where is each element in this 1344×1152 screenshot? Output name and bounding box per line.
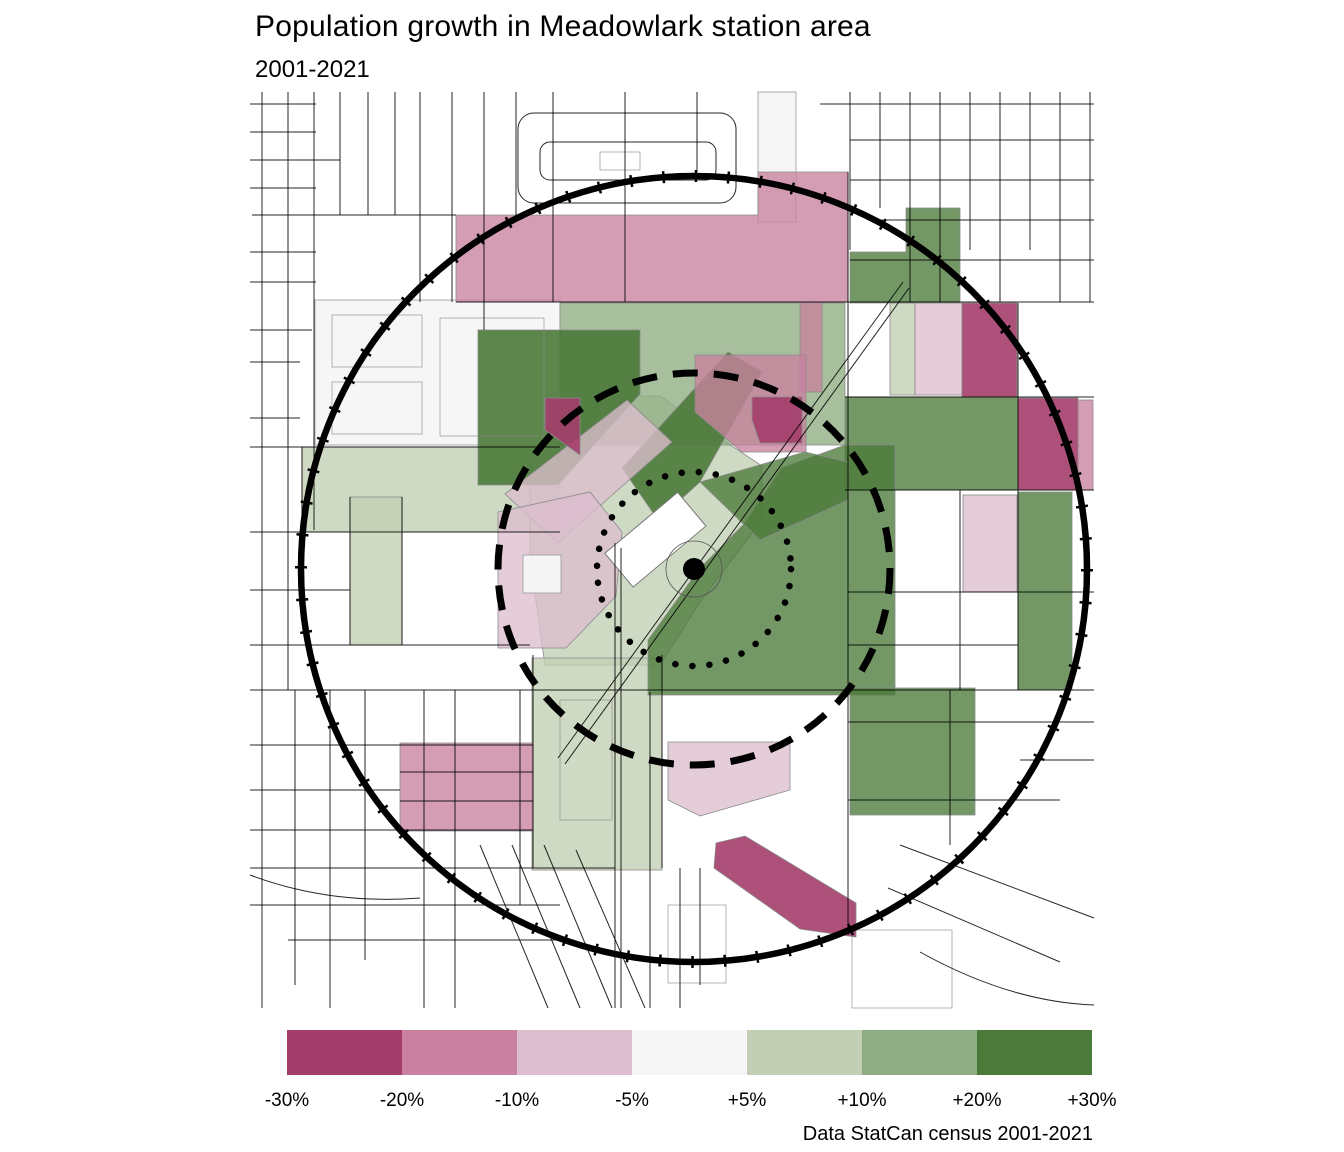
legend-swatch-7 [977, 1030, 1092, 1075]
zone-midpink-striped-block [400, 743, 533, 831]
zone-layer [302, 92, 1093, 937]
legend-label--5: -5% [615, 1090, 649, 1112]
legend-label--10: -10% [495, 1090, 539, 1112]
zone-darkgreen-east-strip [1018, 492, 1072, 690]
zone-darkgreen-south-block [850, 688, 975, 815]
zone-lightpink-east-strip [915, 303, 962, 395]
zone-lightpink-east-small [963, 495, 1017, 592]
legend-swatch-5 [747, 1030, 862, 1075]
legend-swatch-3 [517, 1030, 632, 1075]
legend-label-+10: +10% [837, 1090, 886, 1112]
legend-swatch-6 [862, 1030, 977, 1075]
legend-label--30: -30% [265, 1090, 309, 1112]
zone-lightgreen-east [890, 303, 915, 395]
zone-lightgreen-strip [350, 497, 402, 645]
legend-swatch-1 [287, 1030, 402, 1075]
zone-midpink-east-sliver [1078, 400, 1093, 490]
legend-label--20: -20% [380, 1090, 424, 1112]
zone-magenta-east-1 [962, 303, 1017, 397]
zone-courtyard [523, 555, 561, 593]
legend-bar [287, 1030, 1092, 1075]
zone-lightpink-wavy-band [668, 742, 790, 816]
zone-darkgreen-northeast-L [850, 208, 960, 303]
data-source-caption: Data StatCan census 2001-2021 [803, 1123, 1093, 1146]
legend-swatch-4 [632, 1030, 747, 1075]
legend-label-+5: +5% [728, 1090, 767, 1112]
legend-label-+20: +20% [952, 1090, 1001, 1112]
zone-midpink-north-band [456, 172, 848, 302]
legend-labels: -30%-20%-10%-5%+5%+10%+20%+30% [287, 1090, 1092, 1114]
zone-magenta-south-band [714, 836, 856, 937]
legend-label-+30: +30% [1067, 1090, 1116, 1112]
station-dot [683, 558, 705, 580]
legend-swatch-2 [402, 1030, 517, 1075]
station-area-map [0, 0, 1344, 1152]
